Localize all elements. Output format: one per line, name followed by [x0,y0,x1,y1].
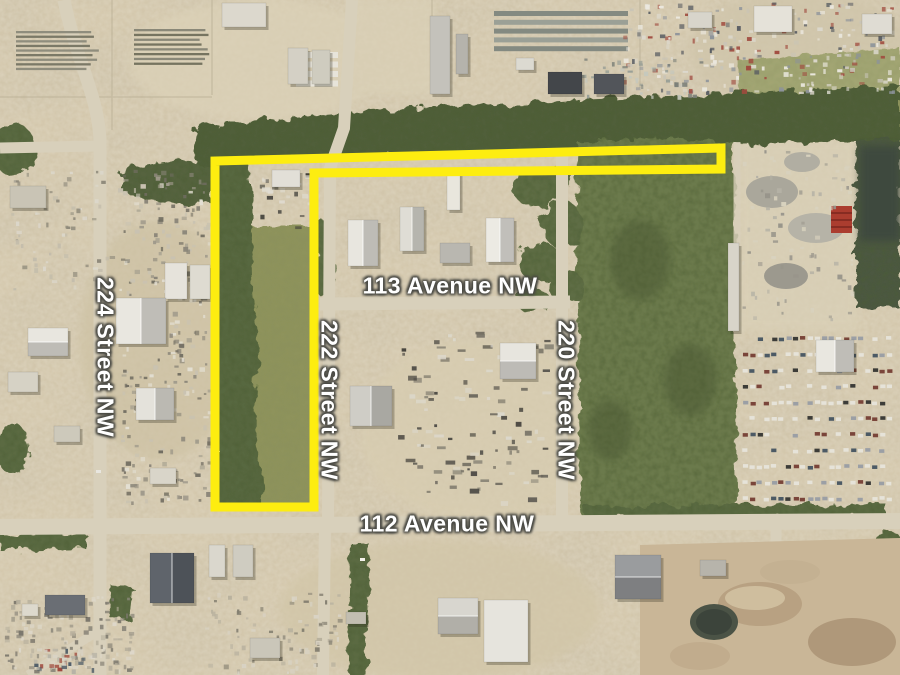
satellite-imagery [0,0,900,675]
dirt-works [640,538,900,675]
road-222-street-south [323,527,325,675]
road-112-avenue [0,521,900,527]
road-top-left [0,146,98,148]
pond [860,146,900,241]
red-container [831,206,852,233]
aerial-map: 224 Street NW 222 Street NW 220 Street N… [0,0,900,675]
road-113-avenue [320,302,570,304]
